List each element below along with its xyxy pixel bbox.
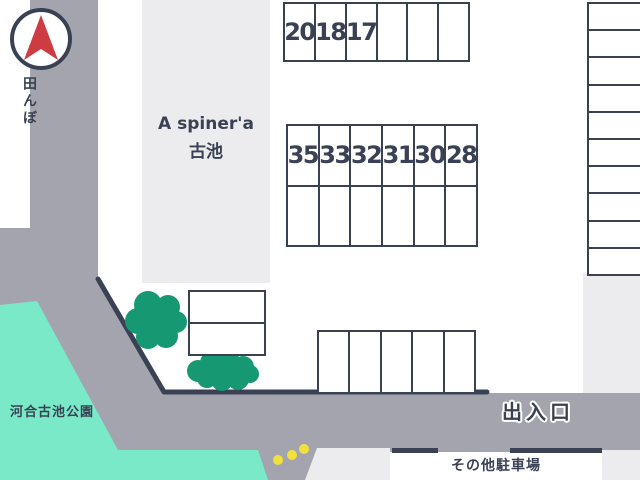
parking-space <box>445 332 474 392</box>
parking-block-middle: 353332313028 <box>286 124 478 247</box>
facility-name-line2: 古池 <box>189 142 223 162</box>
parking-space <box>589 113 640 138</box>
parking-space <box>319 332 348 392</box>
parking-space: 35 <box>288 126 318 185</box>
parking-space <box>190 324 264 354</box>
parking-space <box>413 332 442 392</box>
parking-space <box>288 187 318 246</box>
compass <box>12 10 70 68</box>
parking-space: 28 <box>446 126 476 185</box>
parking-space: 33 <box>320 126 350 185</box>
parking-space <box>446 187 476 246</box>
corner-block <box>602 450 640 480</box>
parking-space <box>589 194 640 219</box>
right-building <box>583 273 640 393</box>
park-label: 河合古池公園 <box>10 401 94 420</box>
parking-space: 32 <box>351 126 381 185</box>
parking-map: 201817 353332313028 田んぼ A spiner'a 古池 河合… <box>0 0 640 480</box>
parking-space <box>589 167 640 192</box>
rice-field-label: 田んぼ <box>19 76 39 127</box>
parking-space: 31 <box>383 126 413 185</box>
sidewalk-block <box>305 448 390 480</box>
parking-space: 18 <box>316 4 345 60</box>
parking-space <box>378 4 407 60</box>
parking-space <box>439 4 468 60</box>
parking-space <box>383 187 413 246</box>
parking-space: 17 <box>347 4 376 60</box>
parking-row-top: 201817 <box>283 2 470 62</box>
parking-space <box>415 187 445 246</box>
parking-space <box>589 58 640 83</box>
parking-space <box>190 292 264 322</box>
parking-space <box>320 187 350 246</box>
parking-column-right <box>587 2 640 276</box>
parking-space <box>589 4 640 29</box>
parking-space <box>382 332 411 392</box>
parking-space <box>408 4 437 60</box>
facility-name-line1: A spiner'a <box>158 114 254 134</box>
parking-row-bottom <box>317 330 476 394</box>
facility-label: A spiner'a 古池 <box>142 110 270 166</box>
parking-space: 30 <box>415 126 445 185</box>
parking-block-small <box>188 290 266 356</box>
parking-space <box>589 249 640 274</box>
parking-space <box>589 222 640 247</box>
curb-segment-right <box>510 448 602 453</box>
parking-space <box>350 332 379 392</box>
tree-icon <box>187 350 259 391</box>
other-parking-label: その他駐車場 <box>390 455 602 475</box>
parking-space: 20 <box>285 4 314 60</box>
parking-space <box>589 86 640 111</box>
parking-space <box>351 187 381 246</box>
curb-segment-left <box>392 448 438 453</box>
entrance-label: 出入口 <box>502 396 574 425</box>
parking-space <box>589 140 640 165</box>
parking-space <box>589 31 640 56</box>
